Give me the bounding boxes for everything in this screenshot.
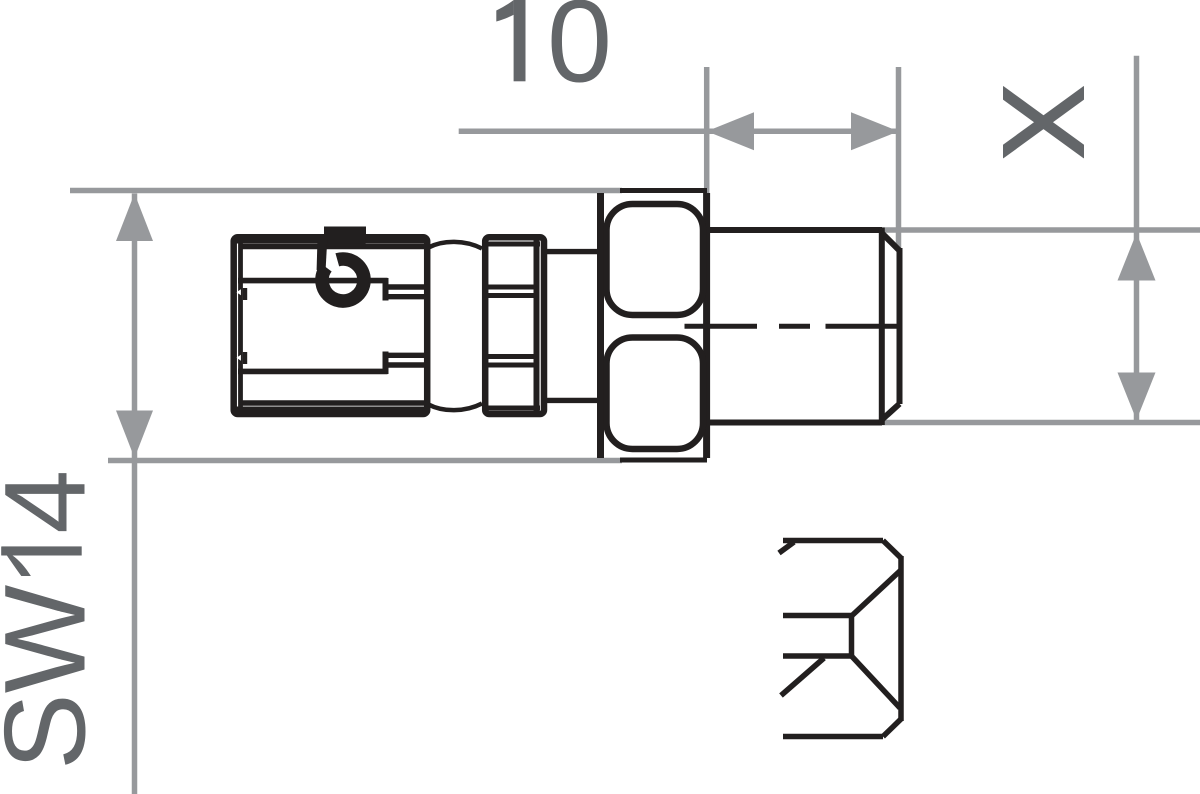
svg-text:4: 4 [0,470,110,534]
svg-text:SW: SW [0,584,110,770]
svg-text:0: 0 [547,0,612,106]
